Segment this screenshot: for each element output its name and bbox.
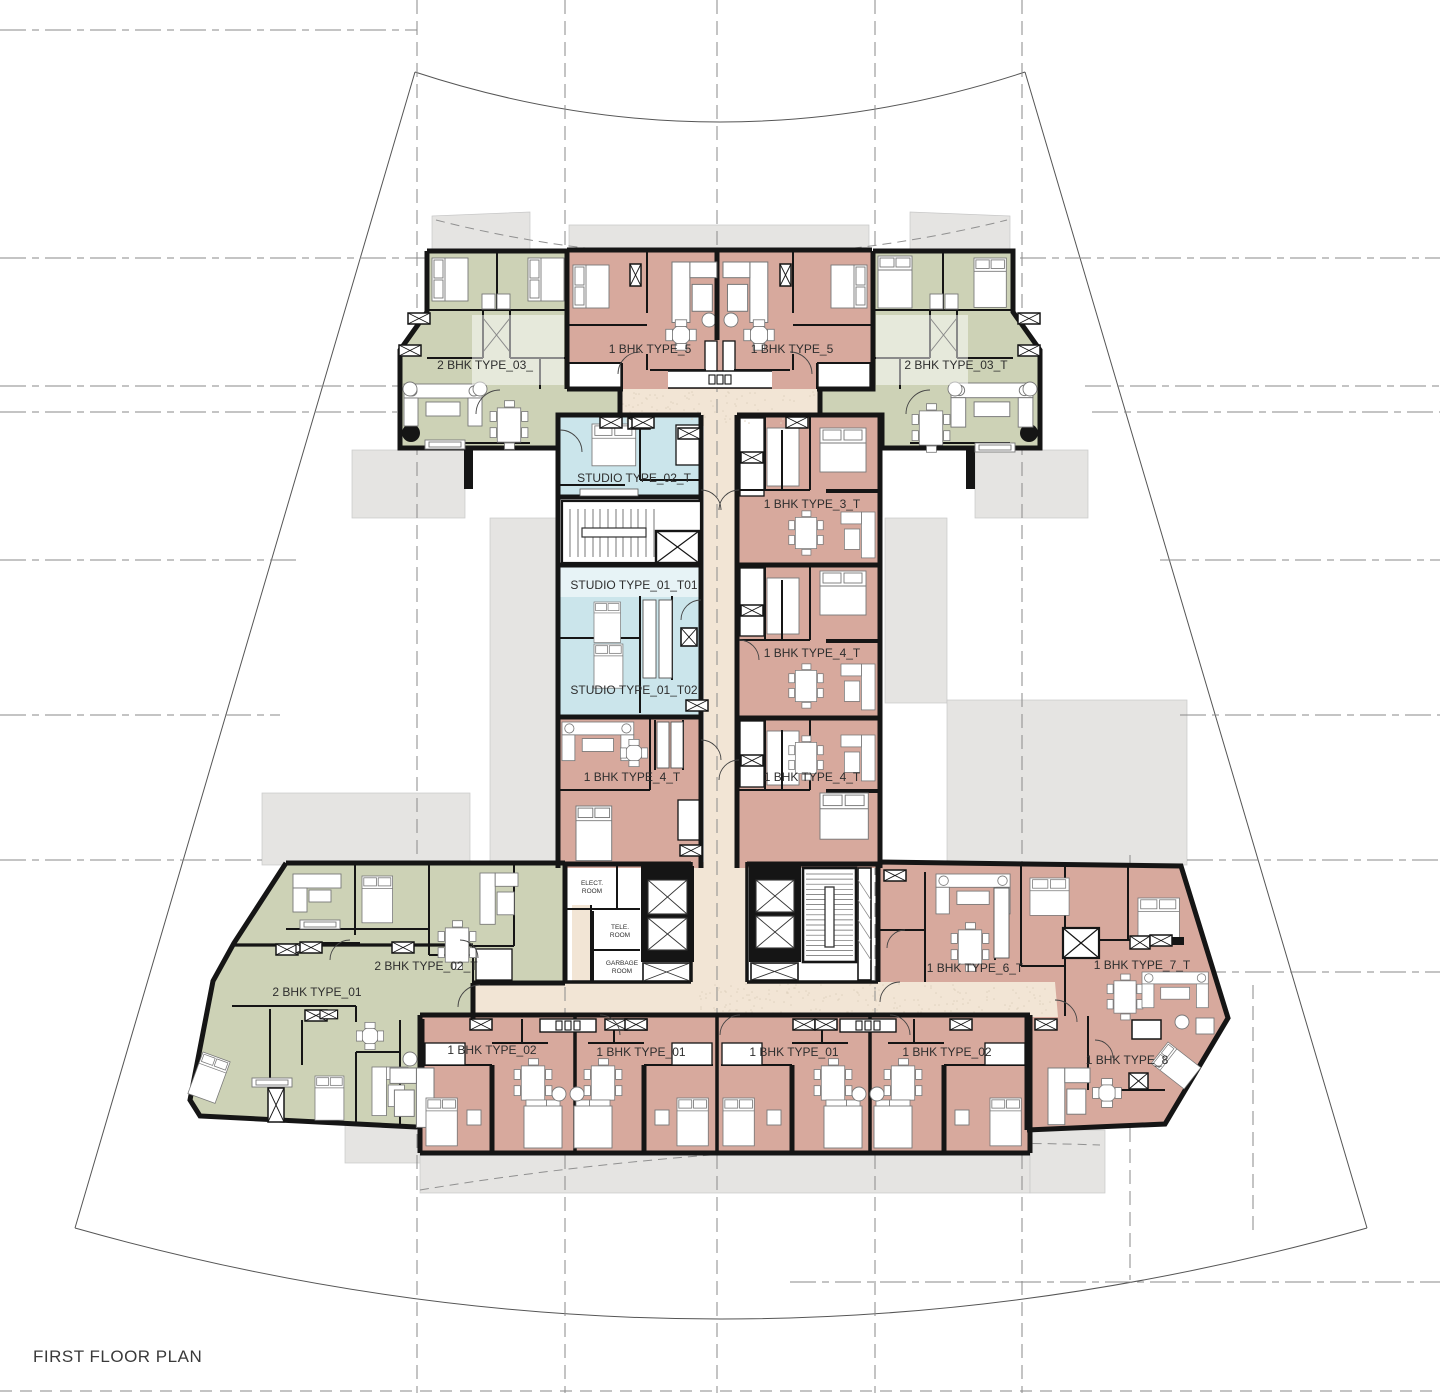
svg-text:1 BHK TYPE_02: 1 BHK TYPE_02	[902, 1045, 991, 1059]
svg-text:ELECT.: ELECT.	[581, 880, 603, 887]
svg-text:1 BHK TYPE_7_T: 1 BHK TYPE_7_T	[1094, 958, 1191, 972]
svg-text:1 BHK TYPE_8: 1 BHK TYPE_8	[1086, 1053, 1169, 1067]
svg-text:GARBAGE: GARBAGE	[606, 960, 639, 967]
svg-text:1 BHK TYPE_01: 1 BHK TYPE_01	[596, 1045, 685, 1059]
svg-text:1 BHK TYPE_4_T: 1 BHK TYPE_4_T	[584, 770, 681, 784]
svg-text:1 BHK TYPE_3_T: 1 BHK TYPE_3_T	[764, 497, 861, 511]
svg-text:1 BHK TYPE_5: 1 BHK TYPE_5	[751, 342, 834, 356]
svg-text:2 BHK TYPE_02_T: 2 BHK TYPE_02_T	[374, 959, 478, 973]
svg-text:2 BHK TYPE_03_T: 2 BHK TYPE_03_T	[904, 358, 1008, 372]
svg-text:STUDIO TYPE_02_T: STUDIO TYPE_02_T	[577, 471, 691, 485]
svg-text:ROOM: ROOM	[582, 888, 602, 895]
svg-text:1 BHK TYPE_6_T: 1 BHK TYPE_6_T	[927, 961, 1024, 975]
svg-text:FIRST FLOOR PLAN: FIRST FLOOR PLAN	[33, 1347, 202, 1366]
svg-text:ROOM: ROOM	[610, 932, 630, 939]
svg-text:2 BHK TYPE_03_: 2 BHK TYPE_03_	[437, 358, 533, 372]
svg-text:2 BHK TYPE_01: 2 BHK TYPE_01	[272, 985, 361, 999]
svg-text:STUDIO TYPE_01_T02: STUDIO TYPE_01_T02	[570, 683, 697, 697]
svg-text:1 BHK TYPE_4_T: 1 BHK TYPE_4_T	[764, 770, 861, 784]
svg-text:1 BHK TYPE_02: 1 BHK TYPE_02	[447, 1043, 536, 1057]
svg-text:ROOM: ROOM	[612, 968, 632, 975]
svg-text:TELE.: TELE.	[611, 924, 629, 931]
svg-text:1 BHK TYPE_4_T: 1 BHK TYPE_4_T	[764, 646, 861, 660]
svg-text:STUDIO TYPE_01_T01: STUDIO TYPE_01_T01	[570, 578, 697, 592]
svg-text:1 BHK TYPE_01: 1 BHK TYPE_01	[749, 1045, 838, 1059]
svg-text:1 BHK TYPE_5: 1 BHK TYPE_5	[609, 342, 692, 356]
